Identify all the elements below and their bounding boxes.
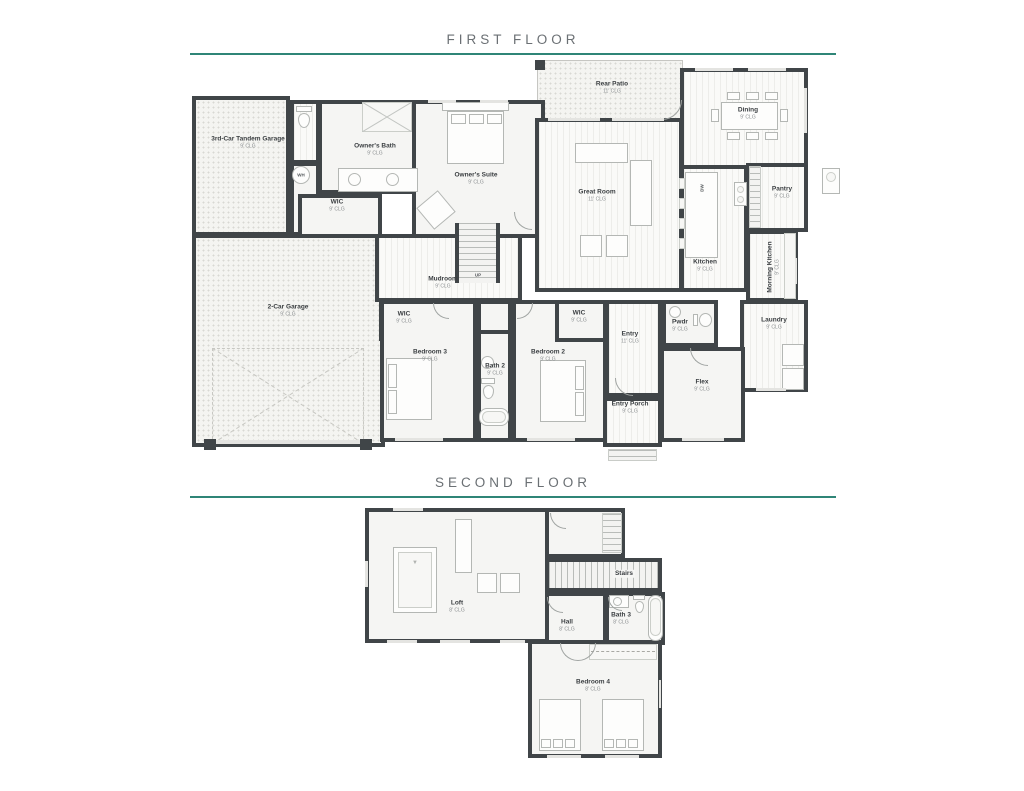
window <box>387 640 417 643</box>
chair-icon <box>500 573 520 593</box>
label-flex: Flex 9' CLG <box>694 379 709 394</box>
label-pantry: Pantry 9' CLG <box>772 186 792 201</box>
stool-icon <box>679 218 685 229</box>
label-bath2: Bath 2 9' CLG <box>485 363 505 378</box>
pillow-icon <box>616 739 626 748</box>
pillow-icon <box>553 739 563 748</box>
pillow-icon <box>388 364 397 388</box>
headboard-icon <box>442 102 509 111</box>
window <box>605 755 639 758</box>
dryer-icon <box>782 368 804 390</box>
chair-icon <box>477 573 497 593</box>
shower-x-icon <box>362 102 412 132</box>
pillow-icon <box>469 114 484 124</box>
label-dining: Dining 9' CLG <box>738 107 758 122</box>
chair-icon <box>780 109 788 122</box>
garage-door <box>214 440 362 444</box>
toilet-tank-icon <box>693 314 698 326</box>
second-floor-divider <box>190 496 836 498</box>
second-floor-header: SECOND FLOOR <box>190 475 836 498</box>
sink-icon <box>348 173 361 186</box>
window <box>547 755 581 758</box>
dishwasher-label: DW <box>700 184 705 192</box>
chair-icon <box>746 92 759 100</box>
garage-door-x-icon <box>212 348 364 444</box>
bathtub-basin-icon <box>650 598 661 636</box>
first-floor-title: FIRST FLOOR <box>190 32 836 47</box>
stairs-up-label: UP <box>475 273 481 278</box>
chair-icon <box>765 132 778 140</box>
window <box>804 88 807 133</box>
label-pwdr: Pwdr 9' CLG <box>672 319 688 334</box>
window <box>695 68 733 71</box>
label-bath3: Bath 3 8' CLG <box>611 612 631 627</box>
pillow-icon <box>388 390 397 414</box>
pillow-icon <box>541 739 551 748</box>
second-floor-plan: ▼ Loft 8' CLG Stairs Hall 8' CLG Bath 3 … <box>365 505 667 760</box>
window <box>527 438 575 441</box>
window <box>500 640 525 643</box>
pillow-icon <box>451 114 466 124</box>
pantry-shelves-icon <box>749 166 761 228</box>
toilet-icon <box>699 313 712 327</box>
garage-pillar-left <box>204 439 216 450</box>
label-3rd-car-garage: 3rd-Car Tandem Garage 9' CLG <box>211 136 285 151</box>
label-hall: Hall 8' CLG <box>559 619 574 634</box>
stairs-second-floor <box>545 558 662 592</box>
label-owners-wic: WIC 9' CLG <box>329 199 344 214</box>
pillow-icon <box>628 739 638 748</box>
sink-icon <box>386 173 399 186</box>
chair-icon <box>711 109 719 122</box>
chair-icon <box>606 235 628 257</box>
water-heater-label: WH <box>297 173 305 178</box>
chair-icon <box>746 132 759 140</box>
window <box>480 100 508 103</box>
window <box>428 100 456 103</box>
window <box>393 508 423 511</box>
room-bedroom-hall <box>477 300 512 334</box>
burner-icon <box>737 186 744 193</box>
toilet-tank-icon <box>296 106 312 112</box>
first-floor-divider <box>190 53 836 55</box>
ac-fan-icon <box>826 172 836 182</box>
second-floor-title: SECOND FLOOR <box>190 475 836 490</box>
window <box>748 68 786 71</box>
label-bedroom2: Bedroom 2 9' CLG <box>531 349 565 364</box>
closet-shelves-icon <box>602 513 622 553</box>
chair-icon <box>580 235 602 257</box>
label-bedroom3: Bedroom 3 9' CLG <box>413 349 447 364</box>
chair-icon <box>727 132 740 140</box>
label-owners-suite: Owner's Suite 9' CLG <box>454 172 497 187</box>
label-rear-patio: Rear Patio 11' CLG <box>596 81 628 96</box>
washer-icon <box>782 344 804 366</box>
pillow-icon <box>575 366 584 390</box>
label-mudroom: Mudroom 9' CLG <box>428 276 458 291</box>
closet-rod-icon <box>591 651 655 653</box>
label-entry-porch: Entry Porch 9' CLG <box>612 401 649 416</box>
room-3rd-car-garage <box>192 96 290 236</box>
label-kitchen: Kitchen 9' CLG <box>693 259 717 274</box>
window <box>440 640 470 643</box>
toilet-tank-icon <box>633 595 645 600</box>
window <box>612 118 664 121</box>
stool-icon <box>679 238 685 249</box>
stool-icon <box>679 178 685 189</box>
bathtub-basin-icon <box>482 411 506 423</box>
label-wic-bedroom3: WIC 9' CLG <box>396 311 411 326</box>
first-floor-plan: WH DW 3rd-Car Tandem Garage 9' C <box>190 60 842 460</box>
label-owners-bath: Owner's Bath 9' CLG <box>354 143 396 158</box>
chair-icon <box>727 92 740 100</box>
label-bedroom4: Bedroom 4 8' CLG <box>576 679 610 694</box>
window <box>659 680 661 708</box>
window <box>548 118 600 121</box>
toilet-tank-icon <box>481 378 495 384</box>
window <box>682 438 724 441</box>
label-great-room: Great Room 11' CLG <box>578 189 615 204</box>
pillow-icon <box>604 739 614 748</box>
label-entry: Entry 11' CLG <box>621 331 639 346</box>
sofa-icon <box>455 519 472 573</box>
sofa-icon <box>575 143 628 163</box>
label-wic-bedroom2: WIC 9' CLG <box>571 310 586 325</box>
pool-rack-icon: ▼ <box>412 560 418 566</box>
label-stairs: Stairs <box>613 570 635 578</box>
room-entry <box>605 300 662 397</box>
pillow-icon <box>565 739 575 748</box>
patio-pillar <box>535 60 545 70</box>
sofa-icon <box>630 160 652 226</box>
label-loft: Loft 8' CLG <box>449 600 464 615</box>
label-2-car-garage: 2-Car Garage 9' CLG <box>268 304 309 319</box>
window <box>795 258 797 284</box>
chair-icon <box>765 92 778 100</box>
porch-steps-icon <box>608 449 657 461</box>
sink-icon <box>669 306 681 318</box>
first-floor-header: FIRST FLOOR <box>190 32 836 55</box>
window <box>365 561 368 587</box>
label-laundry: Laundry 9' CLG <box>761 317 787 332</box>
label-morning-kitchen: Morning Kitchen 9' CLG <box>767 241 782 292</box>
pillow-icon <box>487 114 502 124</box>
burner-icon <box>737 196 744 203</box>
garage-pillar-right <box>360 439 372 450</box>
pillow-icon <box>575 392 584 416</box>
stool-icon <box>679 198 685 209</box>
window <box>395 438 443 441</box>
window <box>756 388 786 391</box>
